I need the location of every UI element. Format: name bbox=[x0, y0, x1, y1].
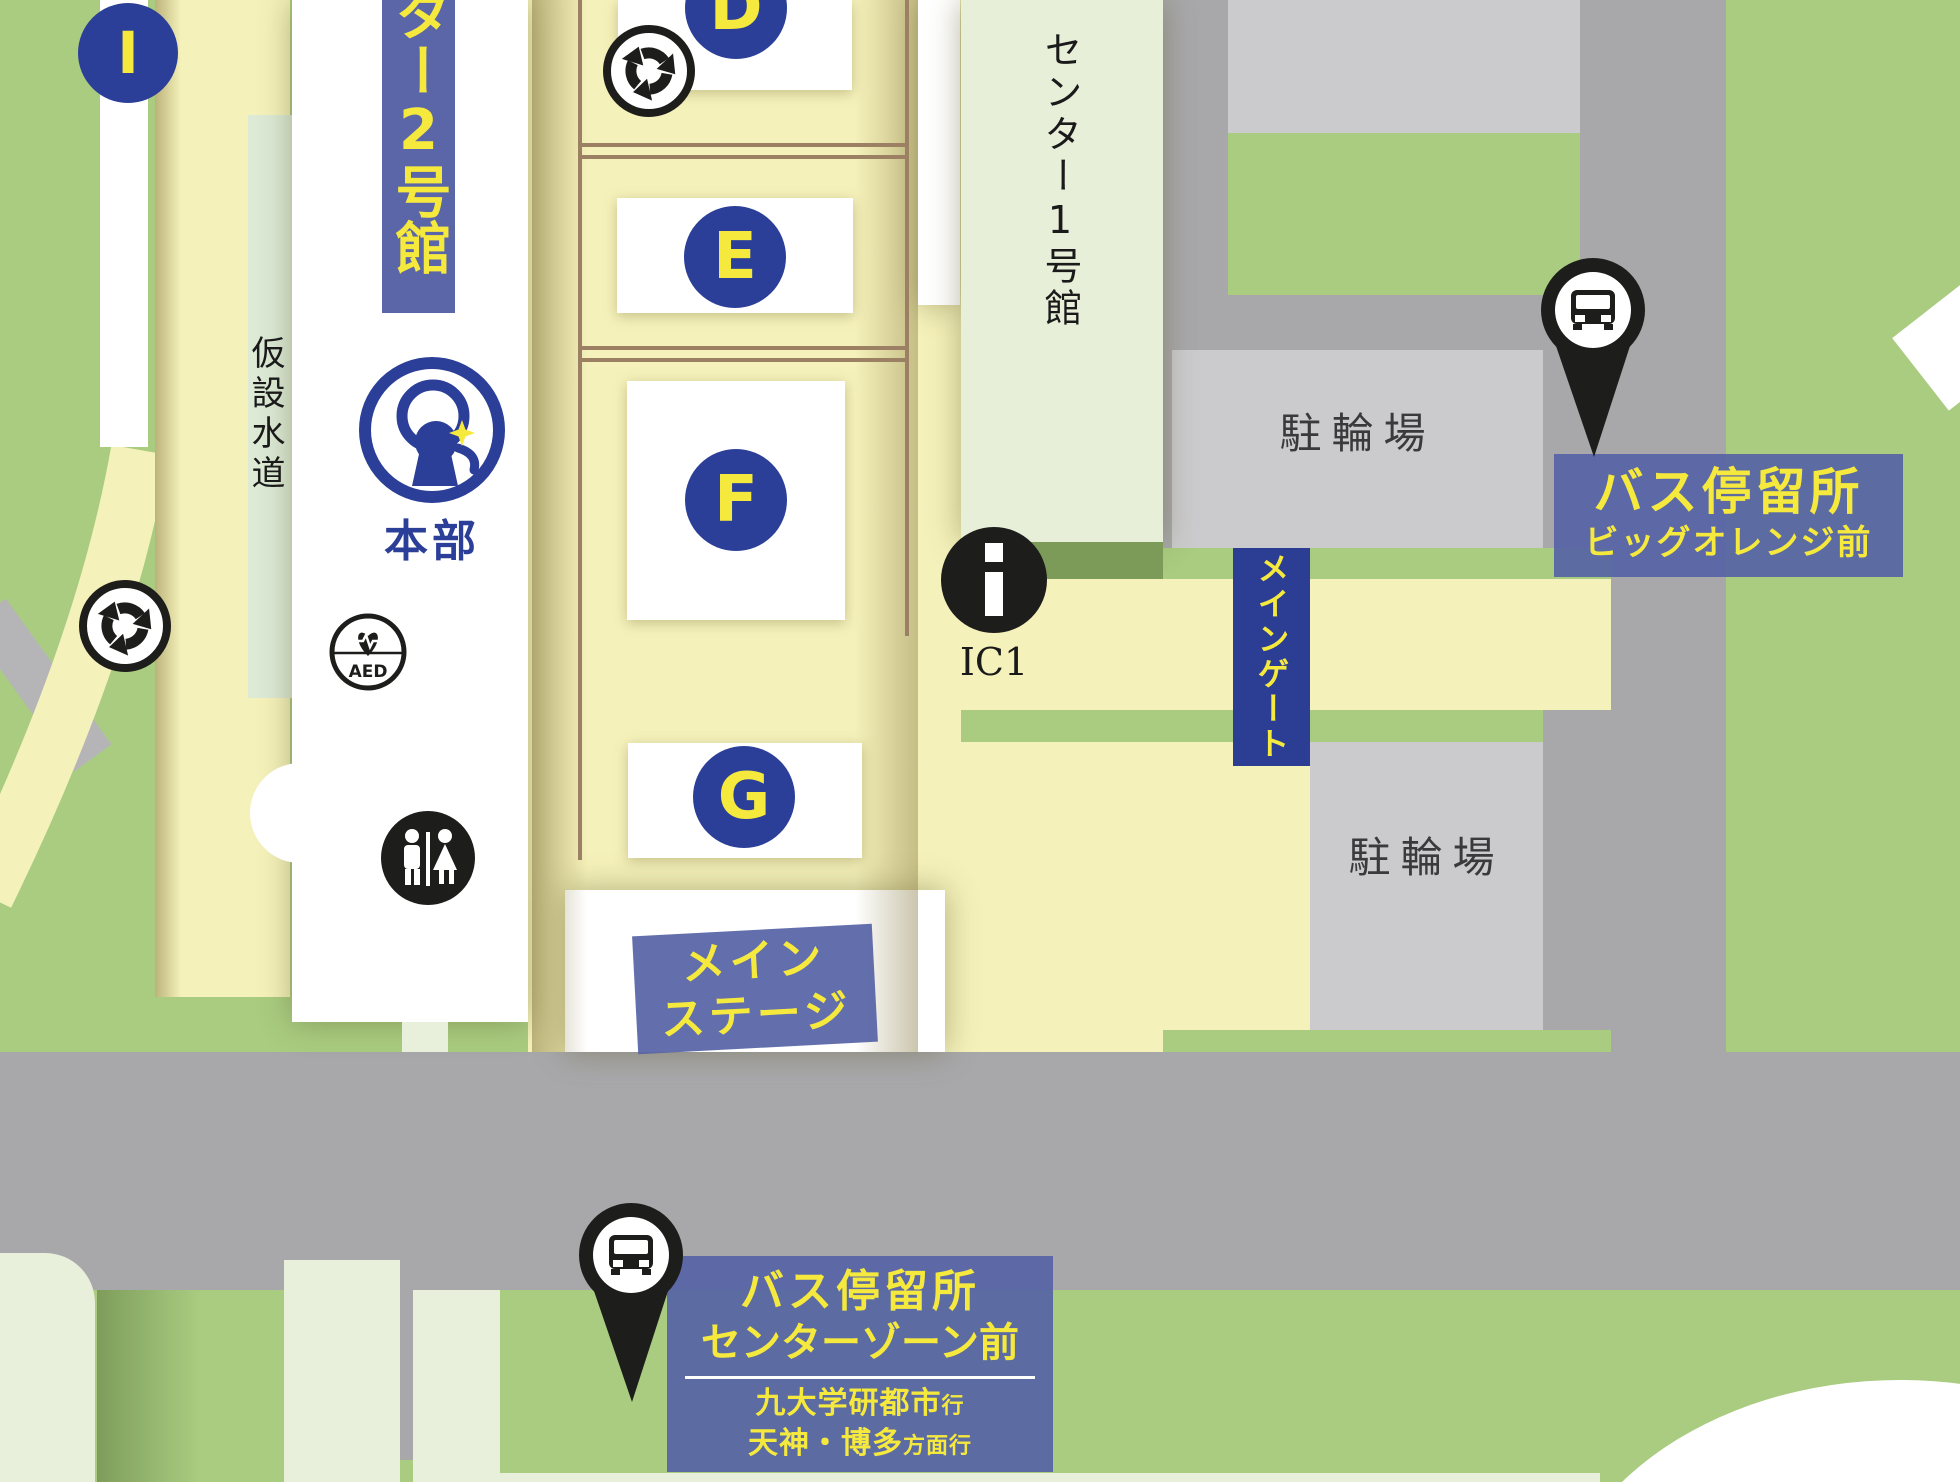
bus-stop-center-title: バス停留所 bbox=[667, 1266, 1053, 1318]
mascot-icon bbox=[371, 369, 493, 491]
plaza-bottom-strip bbox=[413, 1290, 500, 1482]
parking-area-top bbox=[1228, 0, 1580, 133]
aed-icon-label: AED bbox=[349, 662, 388, 682]
headquarters-label: 本部 bbox=[359, 505, 505, 569]
building1-text: センター bbox=[1038, 30, 1082, 198]
booth-letter-f: F bbox=[714, 463, 758, 537]
bus-stop-sign-center-zone: バス停留所 センターゾーン前 九大学研都市行 天神・博多方面行 bbox=[667, 1256, 1053, 1472]
booth-grid-hline-2a bbox=[580, 346, 907, 350]
booth-marker-e: E bbox=[684, 206, 786, 308]
road-horizontal-main bbox=[0, 1052, 1960, 1290]
festival-path-below-gate bbox=[961, 742, 1310, 1052]
booth-grid-vline-left bbox=[578, 0, 582, 860]
booth-marker-f: F bbox=[685, 449, 787, 551]
plaza-bottom-edge bbox=[500, 1473, 1600, 1482]
building1-digit: 1 bbox=[1038, 198, 1082, 246]
building1-text: 号館 bbox=[1038, 246, 1082, 330]
bus-destination-1-main: 九大学研都市 bbox=[755, 1386, 941, 1421]
road-segment-mid bbox=[1543, 710, 1611, 1030]
shade-left-strip bbox=[155, 0, 181, 997]
bus-destination-2: 天神・博多方面行 bbox=[667, 1425, 1053, 1465]
hedge-band-lower bbox=[1163, 1030, 1611, 1052]
road-vertical-right-lower bbox=[1611, 548, 1726, 1052]
bus-stop-center-subtitle: センターゾーン前 bbox=[667, 1318, 1053, 1368]
bus-stop-orange-subtitle: ビッグオレンジ前 bbox=[1554, 522, 1903, 564]
building2-text: ター bbox=[386, 0, 451, 98]
booth-marker-g: G bbox=[693, 746, 795, 848]
bus-destination-2-suffix: 方面行 bbox=[903, 1434, 972, 1459]
bus-stop-sign-big-orange: バス停留所 ビッグオレンジ前 bbox=[1554, 454, 1903, 577]
center-building-2-bay bbox=[250, 763, 350, 863]
booth-grid-hline-1a bbox=[580, 143, 907, 147]
recycle-icon bbox=[79, 580, 171, 672]
bicycle-parking-upper: 駐輪場 bbox=[1172, 350, 1543, 548]
booth-letter-g: G bbox=[718, 760, 771, 834]
bus-destination-1: 九大学研都市行 bbox=[667, 1385, 1053, 1425]
building2-digit: 2 bbox=[386, 98, 451, 163]
hedge-band-above-gate bbox=[1163, 548, 1611, 579]
main-stage-line2: ステージ bbox=[635, 983, 877, 1049]
building-corner-topright bbox=[1892, 265, 1960, 410]
plaza-bottom-left bbox=[0, 1253, 95, 1482]
booth-grid-hline-1b bbox=[580, 155, 907, 159]
bus-stop-orange-title: バス停留所 bbox=[1554, 462, 1903, 522]
road-stub-bottom bbox=[400, 1253, 413, 1460]
booth-letter-i: I bbox=[117, 19, 139, 87]
booth-grid-vline-right bbox=[905, 0, 909, 636]
sign-divider bbox=[685, 1376, 1035, 1379]
path-stub-under-building bbox=[402, 1022, 448, 1052]
bus-stop-pin-icon bbox=[556, 1195, 706, 1410]
bicycle-parking-lower: 駐輪場 bbox=[1310, 742, 1543, 1030]
bicycle-parking-upper-label: 駐輪場 bbox=[1172, 400, 1543, 461]
bus-destination-2-main: 天神・博多 bbox=[748, 1426, 903, 1461]
booth-marker-i: I bbox=[78, 3, 178, 103]
temporary-water-label: 仮設水道 bbox=[250, 335, 290, 525]
main-gate-sign: メインゲート bbox=[1233, 548, 1310, 766]
booth-grid-hline-2b bbox=[580, 358, 907, 362]
plaza-bottom-mid bbox=[284, 1260, 400, 1482]
recycle-icon bbox=[603, 25, 695, 117]
restroom-icon bbox=[381, 811, 475, 905]
main-gate-label: メインゲート bbox=[1249, 552, 1295, 762]
hedge-strip-dark bbox=[1030, 542, 1163, 579]
main-stage-sign: メイン ステージ bbox=[632, 924, 878, 1054]
center-building-2-banner: ター2号館 bbox=[382, 0, 455, 313]
bicycle-parking-lower-label: 駐輪場 bbox=[1310, 824, 1543, 885]
bus-stop-pin-icon bbox=[1518, 250, 1668, 465]
info-point-label: IC1 bbox=[941, 640, 1047, 684]
headquarters-mascot-logo bbox=[359, 357, 505, 503]
building2-text: 号館 bbox=[386, 163, 451, 275]
booth-letter-e: E bbox=[713, 220, 757, 294]
bus-destination-1-suffix: 行 bbox=[941, 1394, 964, 1419]
booth-letter-d: D bbox=[709, 0, 762, 45]
aed-icon: AED bbox=[328, 612, 408, 692]
information-icon bbox=[941, 527, 1047, 633]
campus-festival-map: 駐輪場 駐輪場 I D E F bbox=[0, 0, 1960, 1482]
center-building-1-label: センター1号館 bbox=[1038, 30, 1088, 330]
lawn-bottom-left bbox=[97, 1290, 284, 1482]
white-strip-building bbox=[918, 0, 960, 305]
